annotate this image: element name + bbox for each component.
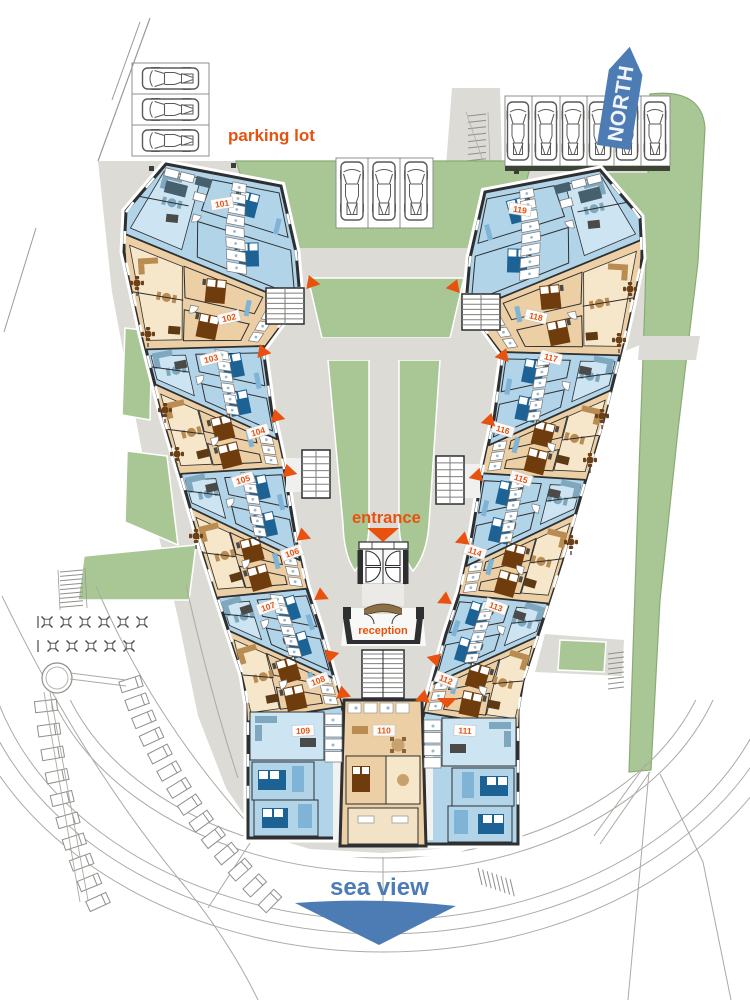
svg-text:109: 109 (296, 725, 311, 736)
svg-text:reception: reception (358, 625, 408, 637)
svg-text:sea view: sea view (330, 874, 429, 901)
svg-text:111: 111 (458, 725, 472, 736)
svg-text:110: 110 (377, 726, 391, 736)
svg-text:entrance: entrance (352, 509, 421, 527)
svg-text:parking lot: parking lot (228, 126, 315, 145)
